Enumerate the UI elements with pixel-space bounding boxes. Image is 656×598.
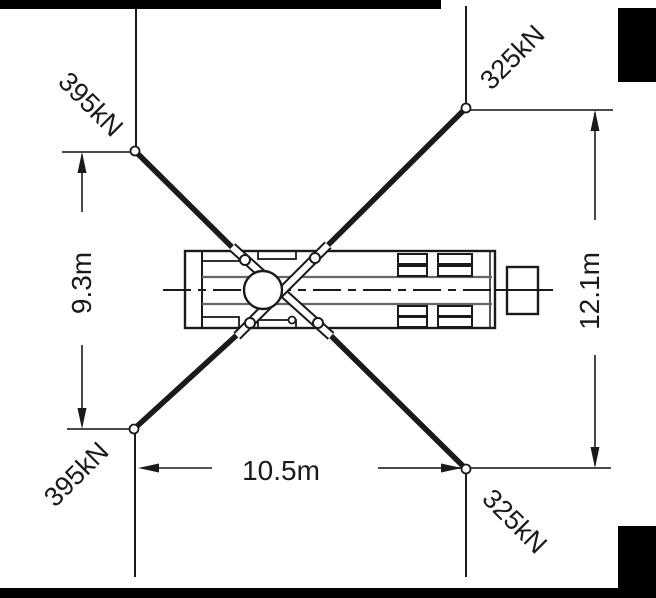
load-label-top-right: 325kN xyxy=(474,19,550,95)
wheel xyxy=(438,254,472,264)
pivot xyxy=(313,318,323,328)
scan-mask-top-bar xyxy=(0,0,441,9)
scan-mask-bottom-right-block xyxy=(618,526,656,598)
outrigger-pad-top-right xyxy=(462,104,471,113)
load-label-bottom-right: 325kN xyxy=(476,483,552,559)
arrowhead-up-icon xyxy=(78,152,87,173)
outrigger-pad-top-left xyxy=(131,147,140,156)
outrigger-pad-bottom-left xyxy=(130,425,139,434)
arrowhead-down-icon xyxy=(591,447,600,468)
pivot-small xyxy=(289,317,296,324)
arrowhead-up-icon xyxy=(591,110,600,131)
wheel xyxy=(398,266,427,276)
crane-carrier xyxy=(163,251,553,328)
dimension-label-right: 12.1m xyxy=(574,252,605,330)
slew-ring xyxy=(244,271,282,309)
arrowhead-left-icon xyxy=(138,464,159,473)
wheel xyxy=(438,317,472,327)
wheel xyxy=(438,266,472,276)
dimension-label-left: 9.3m xyxy=(66,252,97,314)
wheel xyxy=(398,306,427,316)
pivot xyxy=(310,253,320,263)
outrigger-load-diagram: 395kN 325kN 395kN 325kN 9.3m 12.1m 10.5m xyxy=(0,0,656,598)
outrigger-pad-bottom-right xyxy=(462,465,471,474)
wheel xyxy=(438,306,472,316)
load-label-bottom-left: 395kN xyxy=(38,436,114,512)
beam-top-left xyxy=(135,151,245,260)
beam-top-right xyxy=(315,108,466,258)
scan-mask-top-right-block xyxy=(618,8,656,82)
wheel xyxy=(398,317,427,327)
scan-mask-bottom-bar xyxy=(0,588,656,598)
wheel xyxy=(398,254,427,264)
arrowhead-down-icon xyxy=(78,408,87,429)
beam-bottom-left xyxy=(134,323,250,429)
pivot xyxy=(245,318,255,328)
load-label-top-left: 395kN xyxy=(52,66,128,142)
dimension-label-bottom: 10.5m xyxy=(242,455,320,486)
pivot xyxy=(240,255,250,265)
beam-bottom-right xyxy=(318,323,466,469)
